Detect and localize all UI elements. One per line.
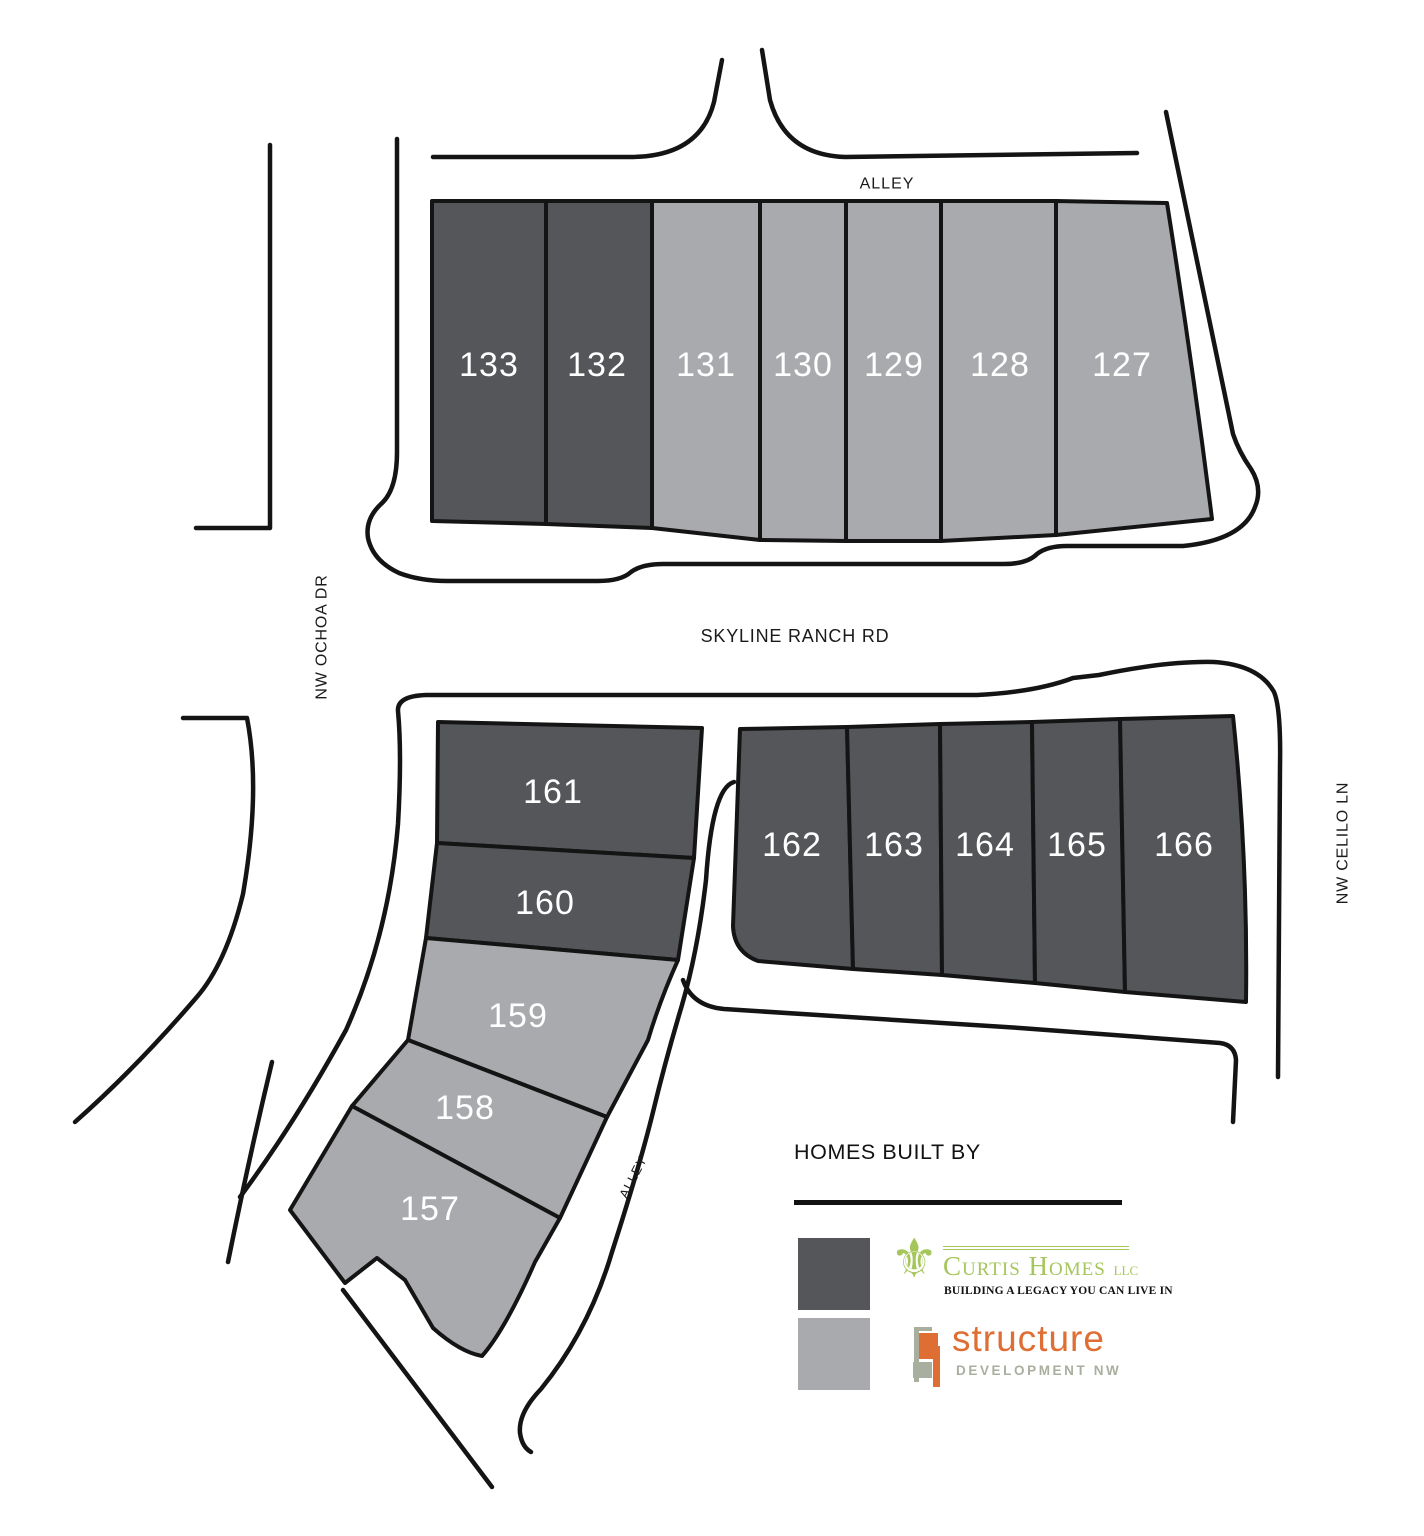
lot-162-label: 162 [762, 826, 822, 864]
lot-132-label: 132 [567, 346, 627, 384]
road-alley-north-edge-east [762, 50, 1137, 157]
street-label-alley-diagonal: ALLEY [616, 1153, 650, 1200]
site-map: 1331321311301291281271611601591581571621… [0, 0, 1424, 1536]
curtis-homes-tagline: BUILDING A LEGACY YOU CAN LIVE IN [944, 1285, 1173, 1297]
lot-158-label: 158 [435, 1089, 495, 1127]
structure-subtitle: DEVELOPMENT NW [956, 1363, 1121, 1378]
lot-133-label: 133 [459, 346, 519, 384]
lot-166-label: 166 [1154, 826, 1214, 864]
lot-161-label: 161 [523, 773, 583, 811]
structure-name: structure [952, 1320, 1105, 1357]
structure-icon-bar [914, 1327, 932, 1331]
lot-157-label: 157 [400, 1190, 460, 1228]
curtis-homes-logo: Curtis Homes LLC [943, 1246, 1129, 1280]
structure-icon-bar [933, 1346, 940, 1387]
road-alley-north-edge-west [433, 60, 722, 157]
curtis-homes-suffix: LLC [1114, 1263, 1139, 1278]
lot-165-label: 165 [1047, 826, 1107, 864]
lot-160-label: 160 [515, 884, 575, 922]
road-ochoa-west-edge [196, 145, 270, 528]
structure-logo-icon [913, 1325, 941, 1388]
legend-swatch-curtis-homes [798, 1238, 870, 1310]
lot-163-label: 163 [864, 826, 924, 864]
legend-title: HOMES BUILT BY [794, 1140, 981, 1165]
lot-131-label: 131 [676, 346, 736, 384]
lot-128-label: 128 [970, 346, 1030, 384]
legend-swatch-structure [798, 1318, 870, 1390]
road-south-street-north-edge [683, 980, 1236, 1122]
street-label-skyline-ranch-rd: SKYLINE RANCH RD [701, 626, 890, 646]
legend-divider [794, 1200, 1122, 1205]
lot-164-label: 164 [955, 826, 1015, 864]
lot-130-label: 130 [773, 346, 833, 384]
structure-icon-square [913, 1362, 932, 1378]
road-ochoa-sw-arc-inner [75, 718, 253, 1122]
curtis-homes-name: Curtis Homes [943, 1251, 1106, 1281]
fleur-de-lis-icon: ⚜ [890, 1232, 938, 1286]
site-map-page: 1331321311301291281271611601591581571621… [0, 0, 1424, 1536]
lot-159-label: 159 [488, 997, 548, 1035]
lot-129-label: 129 [864, 346, 924, 384]
lot-127-label: 127 [1092, 346, 1152, 384]
street-label-nw-celilo-ln: NW CELILO LN [1335, 782, 1352, 905]
street-label-alley-top: ALLEY [860, 176, 915, 193]
street-label-nw-ochoa-dr: NW OCHOA DR [314, 574, 331, 699]
